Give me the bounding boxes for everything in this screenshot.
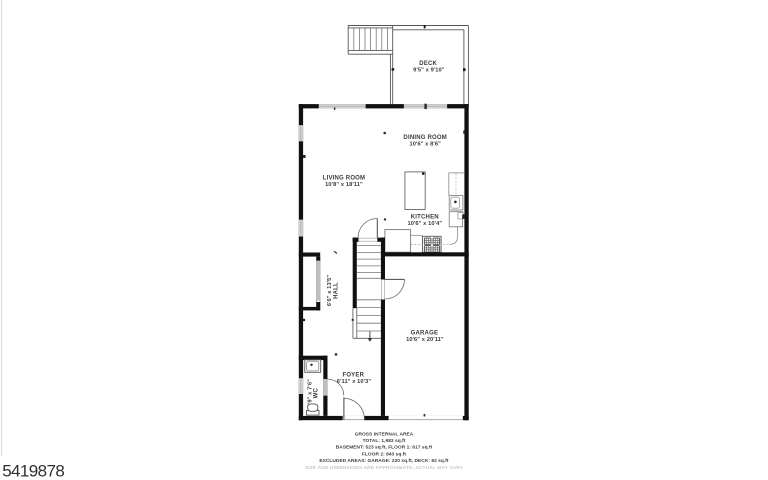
svg-text:5419878: 5419878 [2, 461, 64, 480]
svg-text:TOTAL: 1,983 sq.ft: TOTAL: 1,983 sq.ft [363, 438, 406, 444]
svg-text:2'9" x 7'6": 2'9" x 7'6" [307, 379, 313, 407]
svg-text:KITCHEN: KITCHEN [411, 215, 439, 221]
svg-text:10'6" x 20'11": 10'6" x 20'11" [406, 337, 444, 343]
svg-text:6'6" x 13'5": 6'6" x 13'5" [327, 275, 333, 307]
svg-text:DECK: DECK [419, 61, 437, 67]
svg-text:LIVING ROOM: LIVING ROOM [323, 176, 366, 182]
svg-text:SIZE AND DIMENSIONS ARE APPROX: SIZE AND DIMENSIONS ARE APPROXIMATE, ACT… [305, 465, 464, 471]
svg-text:9'5" x 9'10": 9'5" x 9'10" [413, 68, 445, 74]
svg-text:FOYER: FOYER [342, 373, 364, 379]
svg-text:10'8" x 18'11": 10'8" x 18'11" [325, 182, 363, 188]
svg-text:BASEMENT: 523 sq.ft, FLOOR 1:: BASEMENT: 523 sq.ft, FLOOR 1: 617 sq.ft [336, 445, 433, 451]
svg-text:DINING ROOM: DINING ROOM [403, 135, 447, 141]
svg-text:GROSS INTERNAL AREA: GROSS INTERNAL AREA [355, 431, 414, 437]
svg-text:6'11" x 10'3": 6'11" x 10'3" [337, 379, 372, 385]
svg-text:WC: WC [314, 388, 320, 399]
svg-text:FLOOR 2: 843 sq.ft: FLOOR 2: 843 sq.ft [362, 451, 406, 457]
svg-text:HALL: HALL [334, 282, 340, 299]
svg-text:GARAGE: GARAGE [411, 331, 439, 337]
svg-text:10'6" x 10'4": 10'6" x 10'4" [407, 221, 442, 227]
svg-text:10'6" x 8'6": 10'6" x 8'6" [409, 142, 441, 148]
svg-text:EXCLUDED AREAS: GARAGE: 220 sq: EXCLUDED AREAS: GARAGE: 220 sq.ft, DECK:… [319, 458, 448, 464]
